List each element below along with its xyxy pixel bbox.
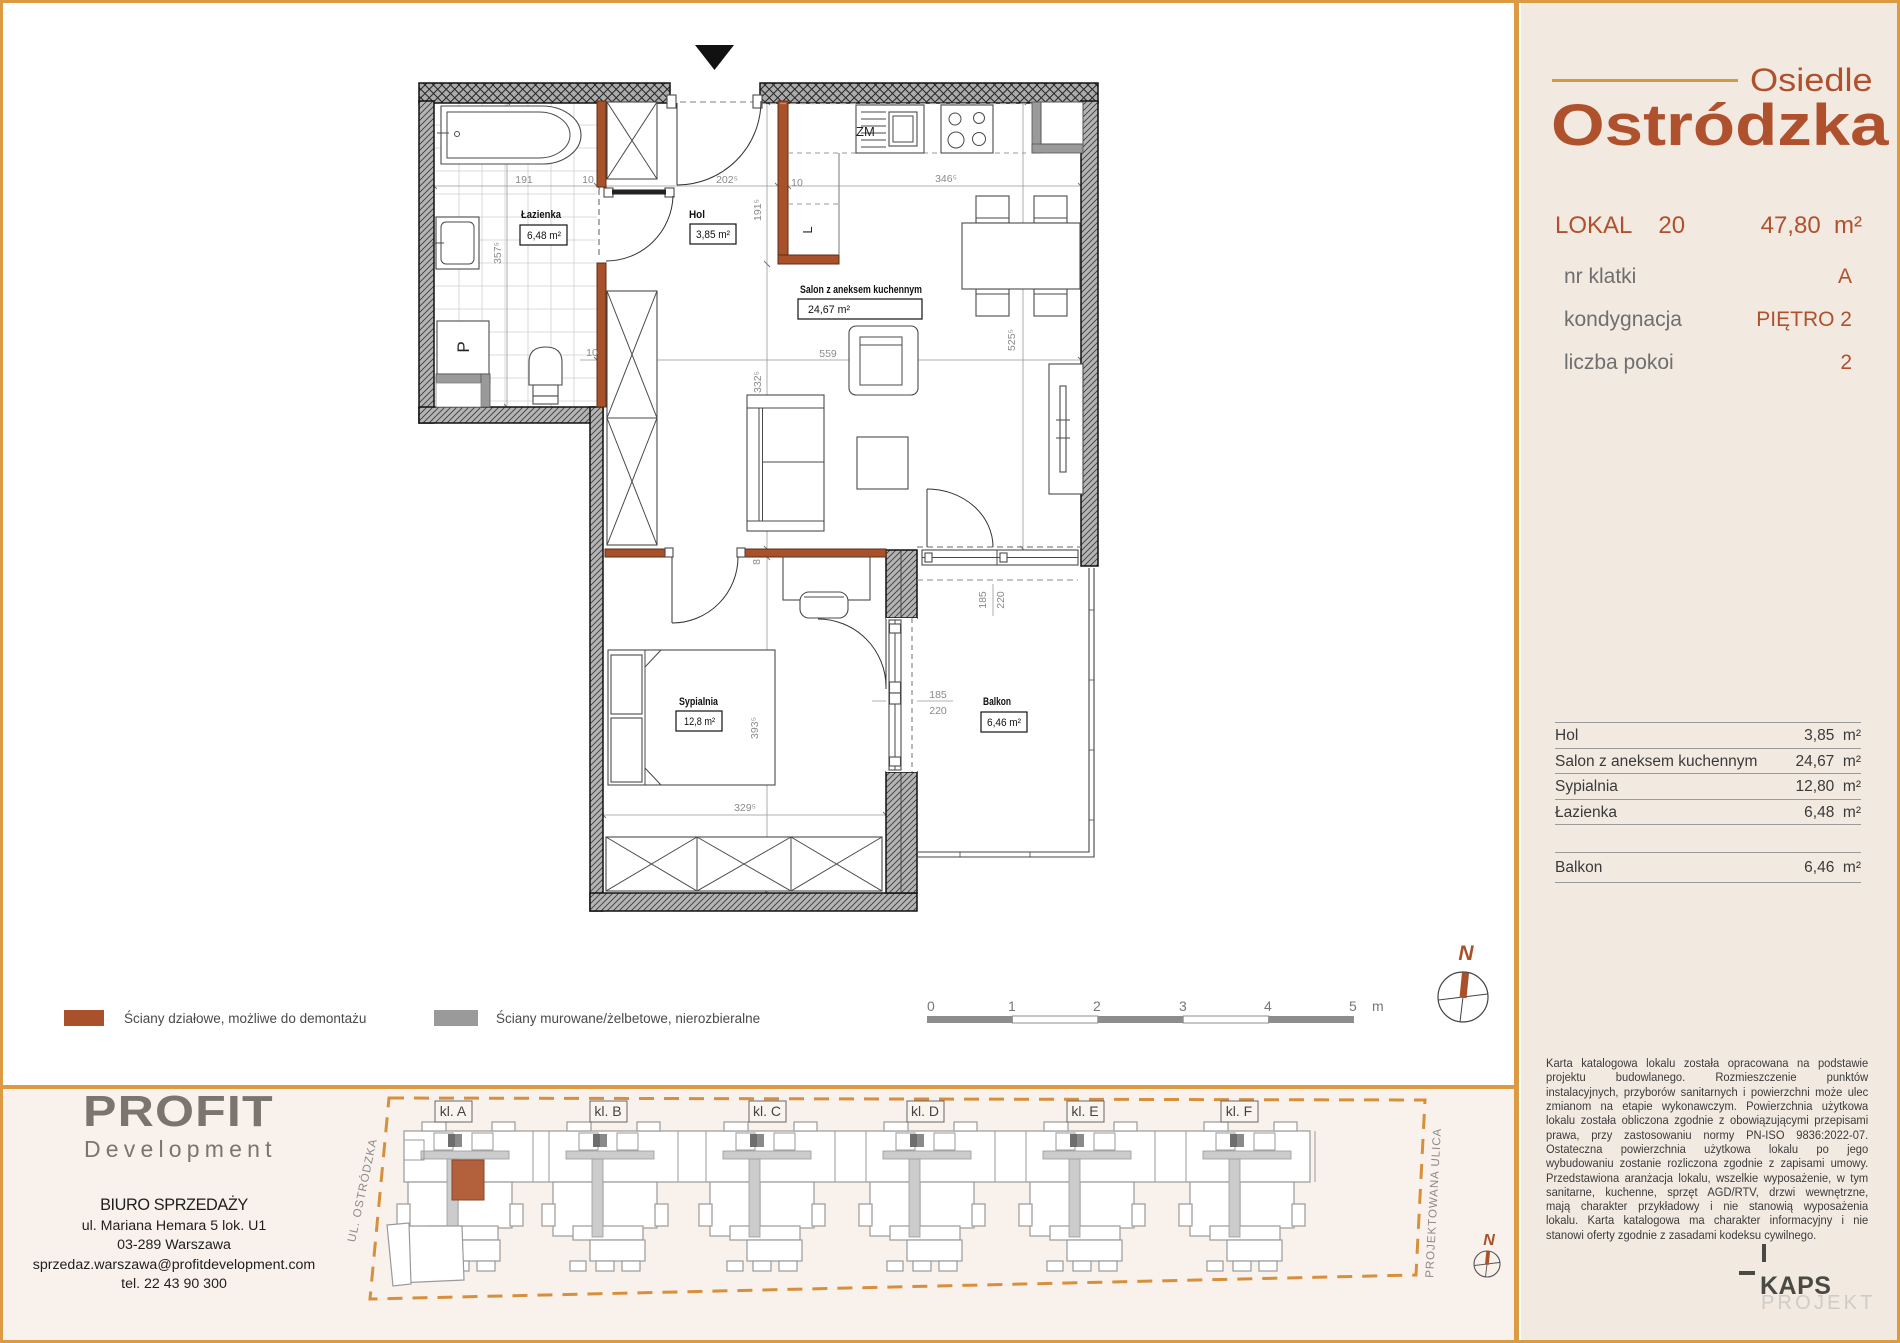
- svg-text:12,8 m²: 12,8 m²: [684, 716, 715, 728]
- svg-text:kl. F: kl. F: [1226, 1103, 1252, 1119]
- svg-text:L: L: [800, 226, 815, 233]
- svg-text:185: 185: [929, 689, 947, 701]
- svg-text:Balkon: Balkon: [983, 696, 1011, 708]
- svg-text:393⁵: 393⁵: [749, 717, 761, 739]
- svg-text:24,67 m²: 24,67 m²: [808, 304, 850, 316]
- svg-text:2: 2: [1093, 998, 1101, 1014]
- svg-text:357⁵: 357⁵: [492, 242, 504, 264]
- svg-text:Ściany murowane/żelbetowe, nie: Ściany murowane/żelbetowe, nierozbieraln…: [496, 1011, 760, 1026]
- svg-text:10: 10: [582, 174, 594, 186]
- svg-text:0: 0: [927, 998, 935, 1014]
- svg-text:kl. C: kl. C: [753, 1103, 781, 1119]
- svg-text:191⁵: 191⁵: [752, 199, 764, 221]
- svg-text:220: 220: [929, 705, 947, 717]
- svg-text:10: 10: [586, 347, 598, 359]
- svg-text:332⁵: 332⁵: [752, 371, 764, 393]
- svg-text:ZM: ZM: [856, 124, 875, 139]
- svg-text:Łazienka: Łazienka: [521, 209, 562, 221]
- svg-text:PROJEKTOWANA ULICA: PROJEKTOWANA ULICA: [1424, 1127, 1444, 1278]
- svg-text:202⁵: 202⁵: [716, 174, 738, 186]
- svg-text:Ściany działowe, możliwe do de: Ściany działowe, możliwe do demontażu: [124, 1011, 366, 1026]
- svg-text:Hol: Hol: [689, 209, 705, 221]
- svg-text:6,48 m²: 6,48 m²: [527, 230, 561, 242]
- svg-text:kl. E: kl. E: [1071, 1103, 1098, 1119]
- svg-text:559: 559: [819, 348, 837, 360]
- svg-text:N: N: [1483, 1232, 1495, 1249]
- svg-text:185: 185: [977, 591, 989, 609]
- svg-text:kl. A: kl. A: [440, 1103, 467, 1119]
- svg-text:6,46 m²: 6,46 m²: [987, 717, 1021, 729]
- svg-text:525⁵: 525⁵: [1006, 329, 1018, 351]
- svg-text:191: 191: [515, 174, 533, 186]
- svg-text:kl. D: kl. D: [911, 1103, 939, 1119]
- svg-text:kl. B: kl. B: [594, 1103, 621, 1119]
- svg-text:3,85 m²: 3,85 m²: [696, 229, 730, 241]
- svg-text:346⁵: 346⁵: [935, 173, 957, 185]
- svg-text:Salon z aneksem kuchennym: Salon z aneksem kuchennym: [800, 284, 922, 296]
- svg-text:N: N: [1458, 942, 1474, 965]
- svg-text:1: 1: [1008, 998, 1016, 1014]
- svg-text:P: P: [454, 341, 473, 352]
- svg-text:3: 3: [1179, 998, 1187, 1014]
- svg-text:m: m: [1372, 998, 1384, 1014]
- svg-text:4: 4: [1264, 998, 1272, 1014]
- svg-text:UL. OSTRÓDZKA: UL. OSTRÓDZKA: [345, 1137, 380, 1243]
- svg-text:5: 5: [1349, 998, 1357, 1014]
- svg-text:10: 10: [791, 177, 803, 189]
- svg-text:329⁵: 329⁵: [734, 802, 756, 814]
- svg-text:220: 220: [995, 591, 1007, 609]
- svg-text:8: 8: [751, 559, 763, 565]
- svg-text:Sypialnia: Sypialnia: [679, 696, 719, 708]
